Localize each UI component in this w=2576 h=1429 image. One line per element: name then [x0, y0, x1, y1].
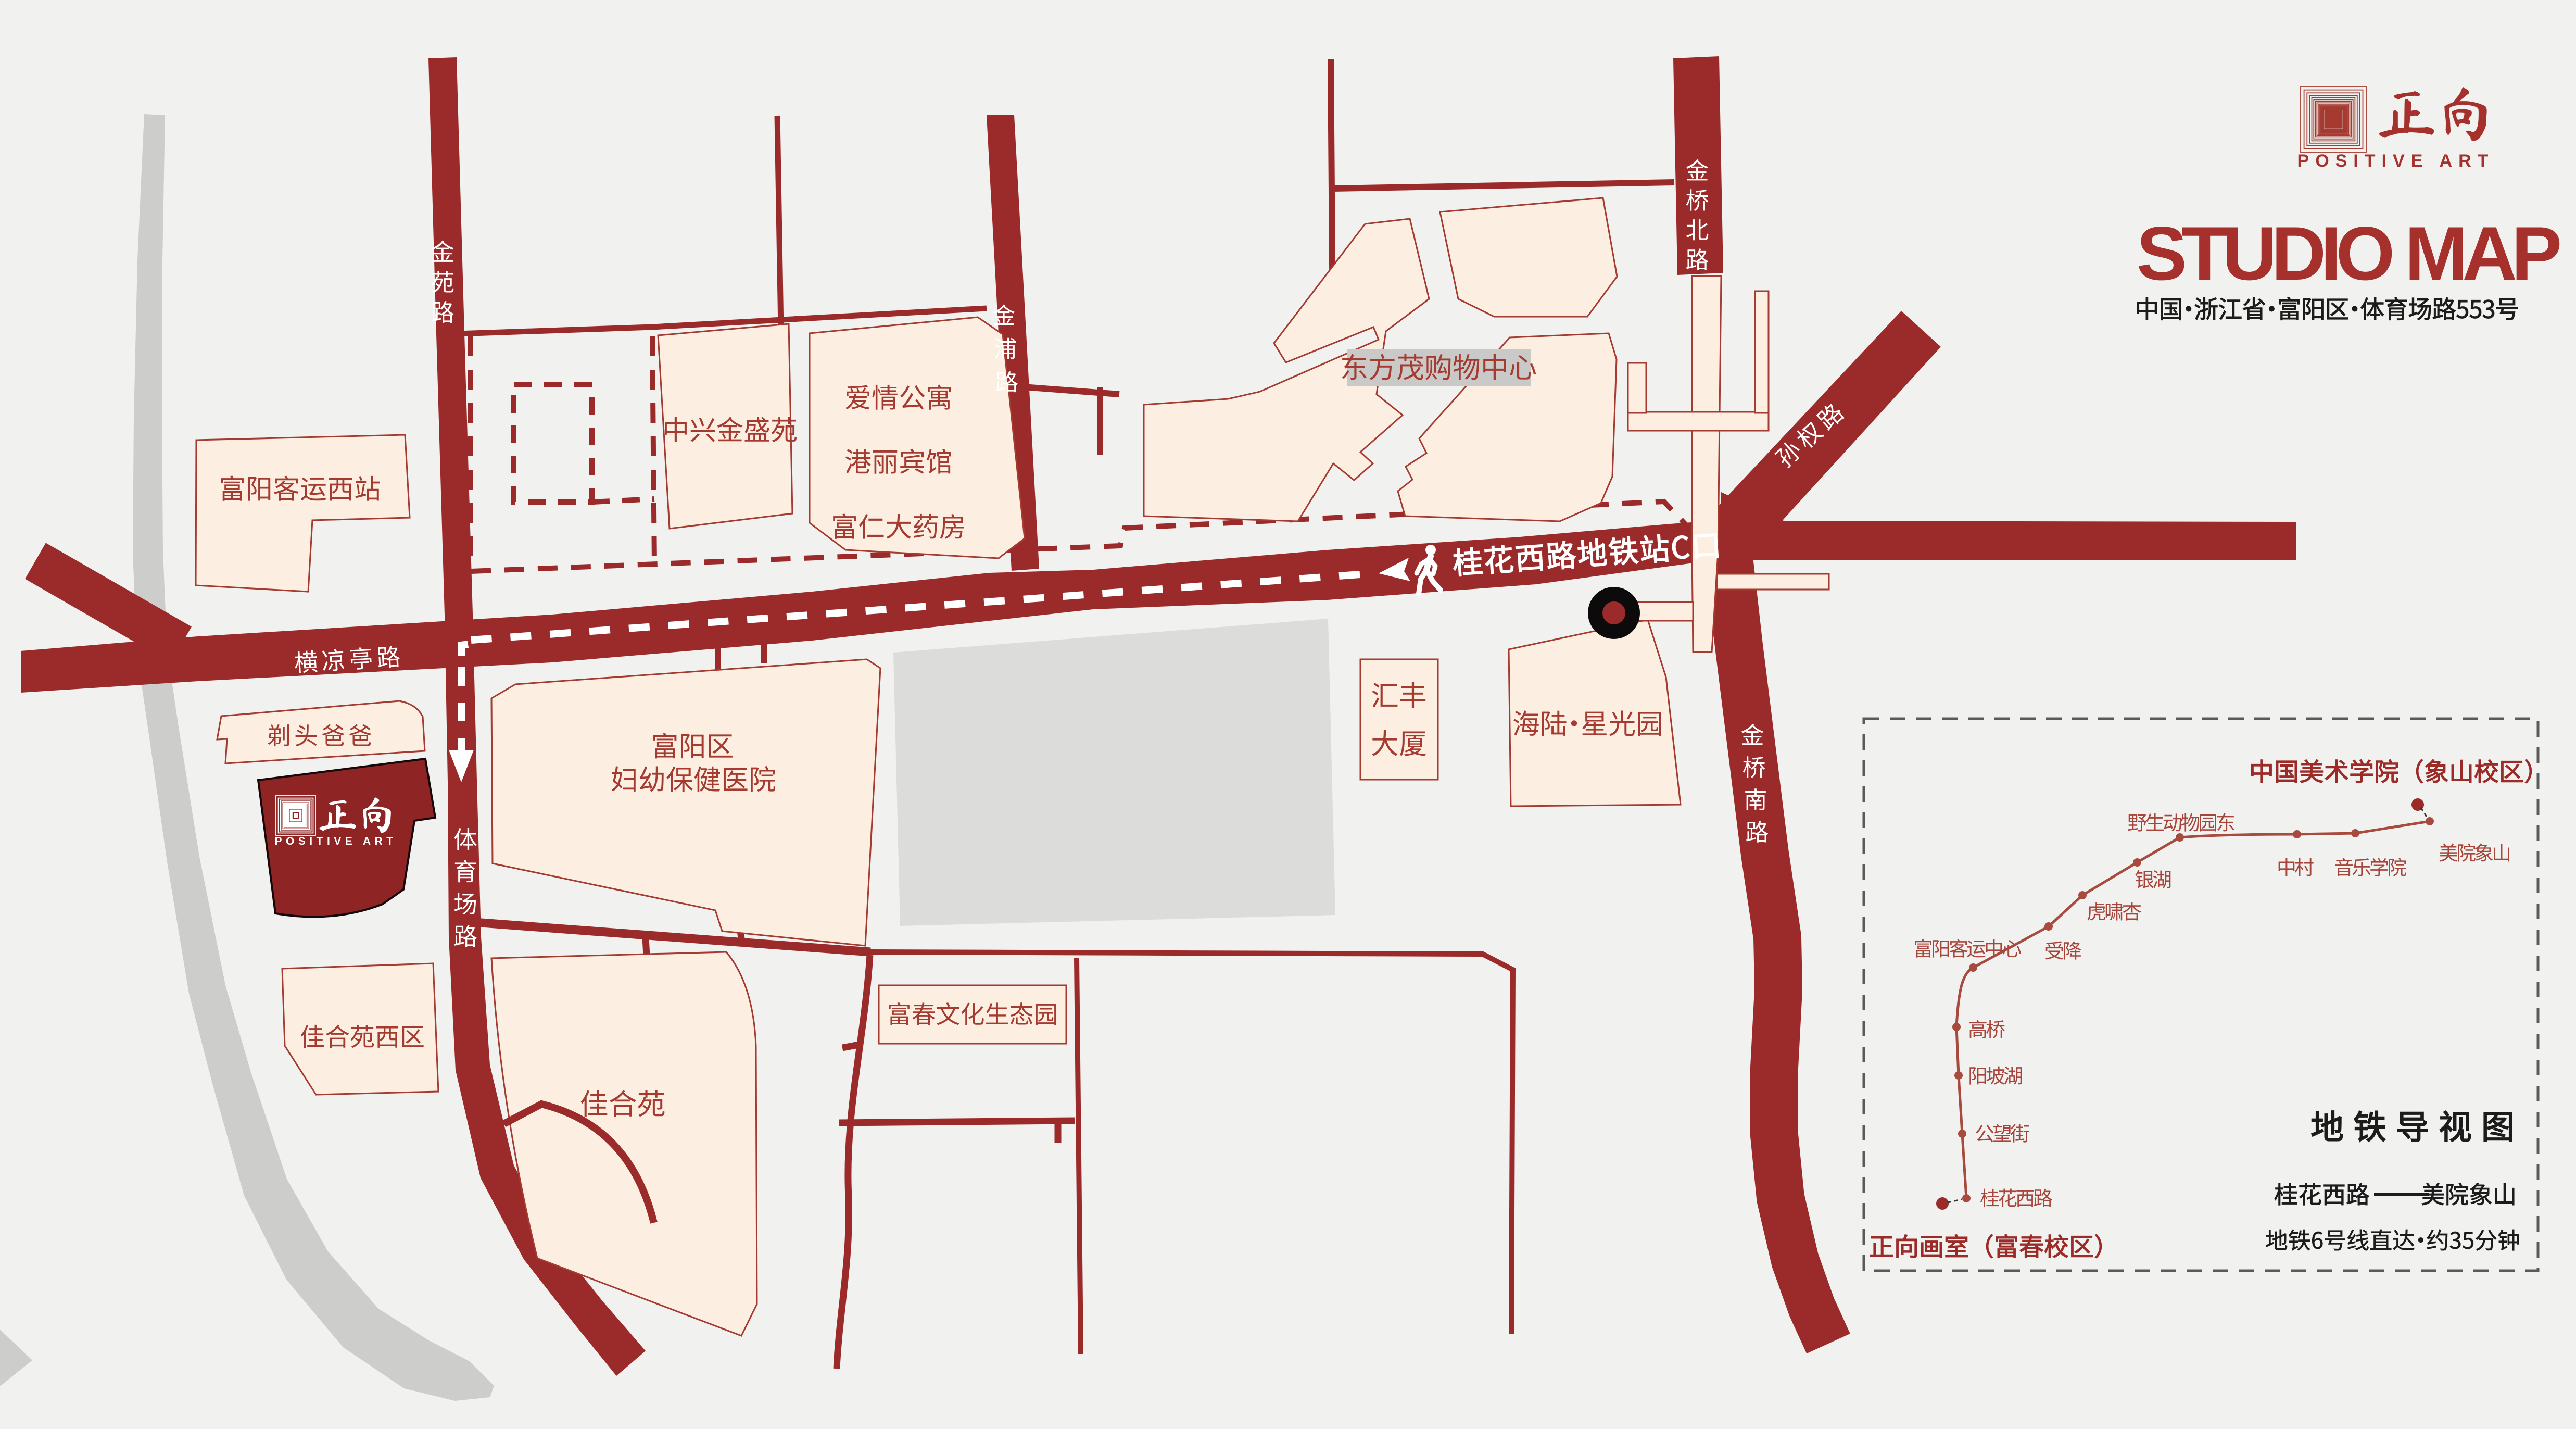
svg-text:POSITIVE ART: POSITIVE ART — [274, 835, 397, 847]
svg-text:STUDIO MAP: STUDIO MAP — [2137, 211, 2560, 296]
svg-text:POSITIVE ART: POSITIVE ART — [2297, 151, 2495, 171]
